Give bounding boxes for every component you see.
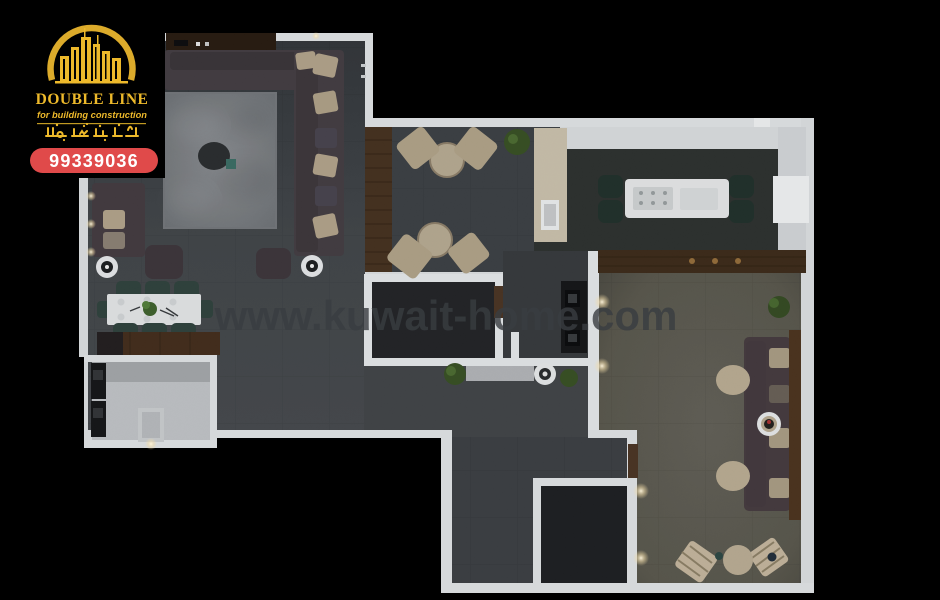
svg-text:DOUBLE LINE: DOUBLE LINE: [36, 91, 149, 108]
svg-text:99339036: 99339036: [49, 151, 139, 171]
svg-text:for building construction: for building construction: [37, 110, 147, 120]
svg-text:www.kuwait-home.com: www.kuwait-home.com: [214, 292, 678, 339]
